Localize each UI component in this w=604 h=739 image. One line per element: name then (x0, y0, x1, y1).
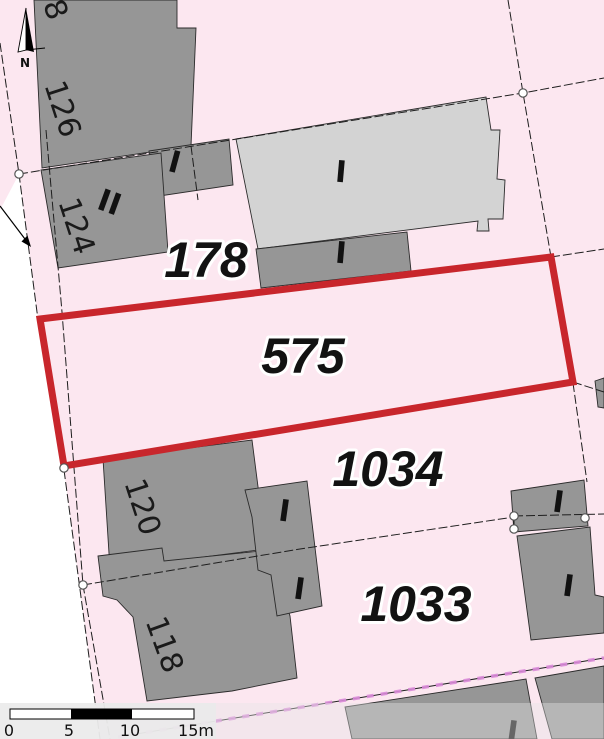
vertex-marker (60, 464, 68, 472)
cadastral-map-canvas[interactable]: 178 575 1034 1033 8 126 124 120 118 I II… (0, 0, 604, 739)
parcel-1033-building-lower (517, 527, 604, 640)
scale-tick-10: 10 (120, 721, 140, 739)
vertex-marker (15, 170, 23, 178)
vertex-marker (510, 512, 518, 520)
parcel-label-575: 575 (261, 328, 346, 384)
scale-tick-0: 0 (4, 721, 14, 739)
north-label: N (20, 56, 30, 70)
vertex-marker (519, 89, 527, 97)
vertex-marker (510, 525, 518, 533)
vertex-marker (79, 581, 87, 589)
scale-tick-5: 5 (64, 721, 74, 739)
parcel-label-1033: 1033 (360, 576, 471, 632)
scale-tick-15: 15m (178, 721, 214, 739)
map-viewport[interactable]: 178 575 1034 1033 8 126 124 120 118 I II… (0, 0, 604, 739)
scale-bar: 0 5 10 15m (0, 703, 604, 739)
scale-bar-black-segment (71, 709, 132, 719)
vertex-marker (581, 514, 589, 522)
parcel-label-1034: 1034 (332, 441, 443, 497)
parcel-label-178: 178 (164, 232, 248, 288)
